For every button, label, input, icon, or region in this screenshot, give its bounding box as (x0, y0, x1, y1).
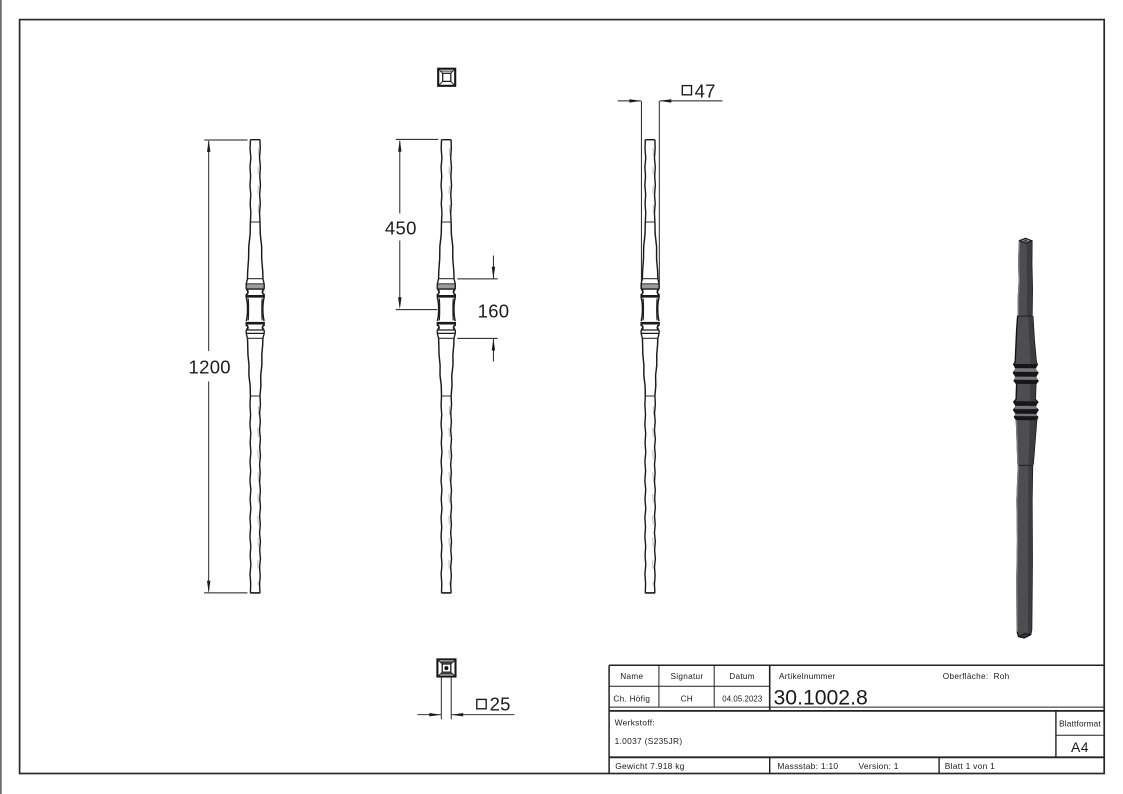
svg-text:Name: Name (620, 672, 643, 681)
svg-text:Version: 1: Version: 1 (859, 761, 899, 771)
svg-text:25: 25 (490, 694, 511, 715)
svg-text:47: 47 (695, 80, 716, 101)
svg-text:160: 160 (478, 300, 510, 321)
svg-text:Ch. Höfig: Ch. Höfig (613, 695, 650, 704)
svg-text:Artikelnummer: Artikelnummer (779, 672, 836, 681)
svg-text:Oberfläche: Roh: Oberfläche: Roh (943, 672, 1010, 681)
svg-text:450: 450 (385, 217, 417, 238)
svg-text:Blatt 1 von 1: Blatt 1 von 1 (945, 761, 995, 771)
svg-text:1200: 1200 (189, 357, 231, 378)
svg-text:Blattformat: Blattformat (1059, 720, 1101, 729)
svg-text:Werkstoff:: Werkstoff: (615, 717, 655, 727)
svg-text:Massstab: 1:10: Massstab: 1:10 (777, 761, 838, 771)
svg-text:A4: A4 (1071, 739, 1089, 755)
svg-text:Gewicht 7.918 kg: Gewicht 7.918 kg (615, 761, 685, 771)
svg-text:04.05.2023: 04.05.2023 (722, 694, 762, 703)
svg-text:Signatur: Signatur (671, 672, 704, 681)
svg-text:Datum: Datum (729, 672, 755, 681)
svg-text:1.0037 (S235JR): 1.0037 (S235JR) (615, 736, 683, 746)
svg-text:CH: CH (681, 695, 693, 704)
svg-text:30.1002.8: 30.1002.8 (774, 687, 868, 710)
